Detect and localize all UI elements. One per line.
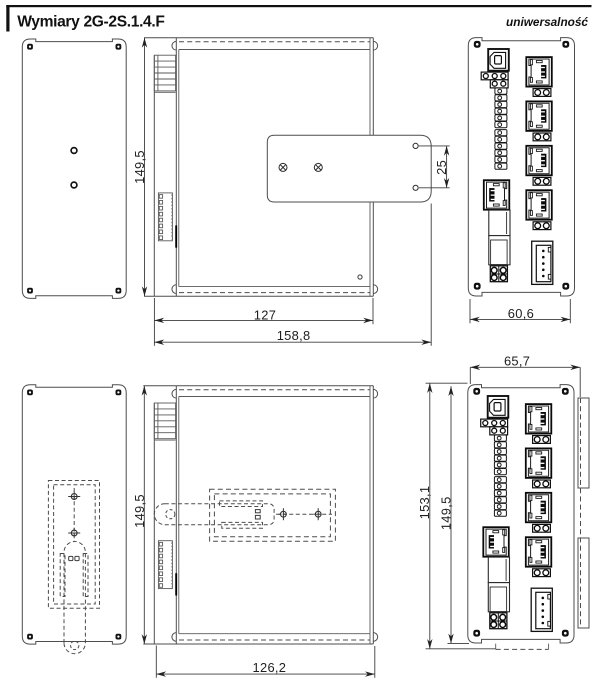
svg-text:60,6: 60,6 <box>508 306 534 321</box>
svg-text:149,5: 149,5 <box>132 494 147 528</box>
svg-text:126,2: 126,2 <box>253 660 287 675</box>
svg-text:25: 25 <box>434 160 449 175</box>
svg-text:153,1: 153,1 <box>417 486 432 520</box>
svg-text:uniwersalność: uniwersalność <box>506 15 588 29</box>
svg-text:65,7: 65,7 <box>504 353 530 368</box>
svg-text:127: 127 <box>254 308 276 323</box>
svg-text:149,5: 149,5 <box>438 496 453 530</box>
svg-text:Wymiary 2G-2S.1.4.F: Wymiary 2G-2S.1.4.F <box>17 13 164 30</box>
svg-text:158,8: 158,8 <box>277 328 311 343</box>
svg-text:149,5: 149,5 <box>132 150 147 184</box>
